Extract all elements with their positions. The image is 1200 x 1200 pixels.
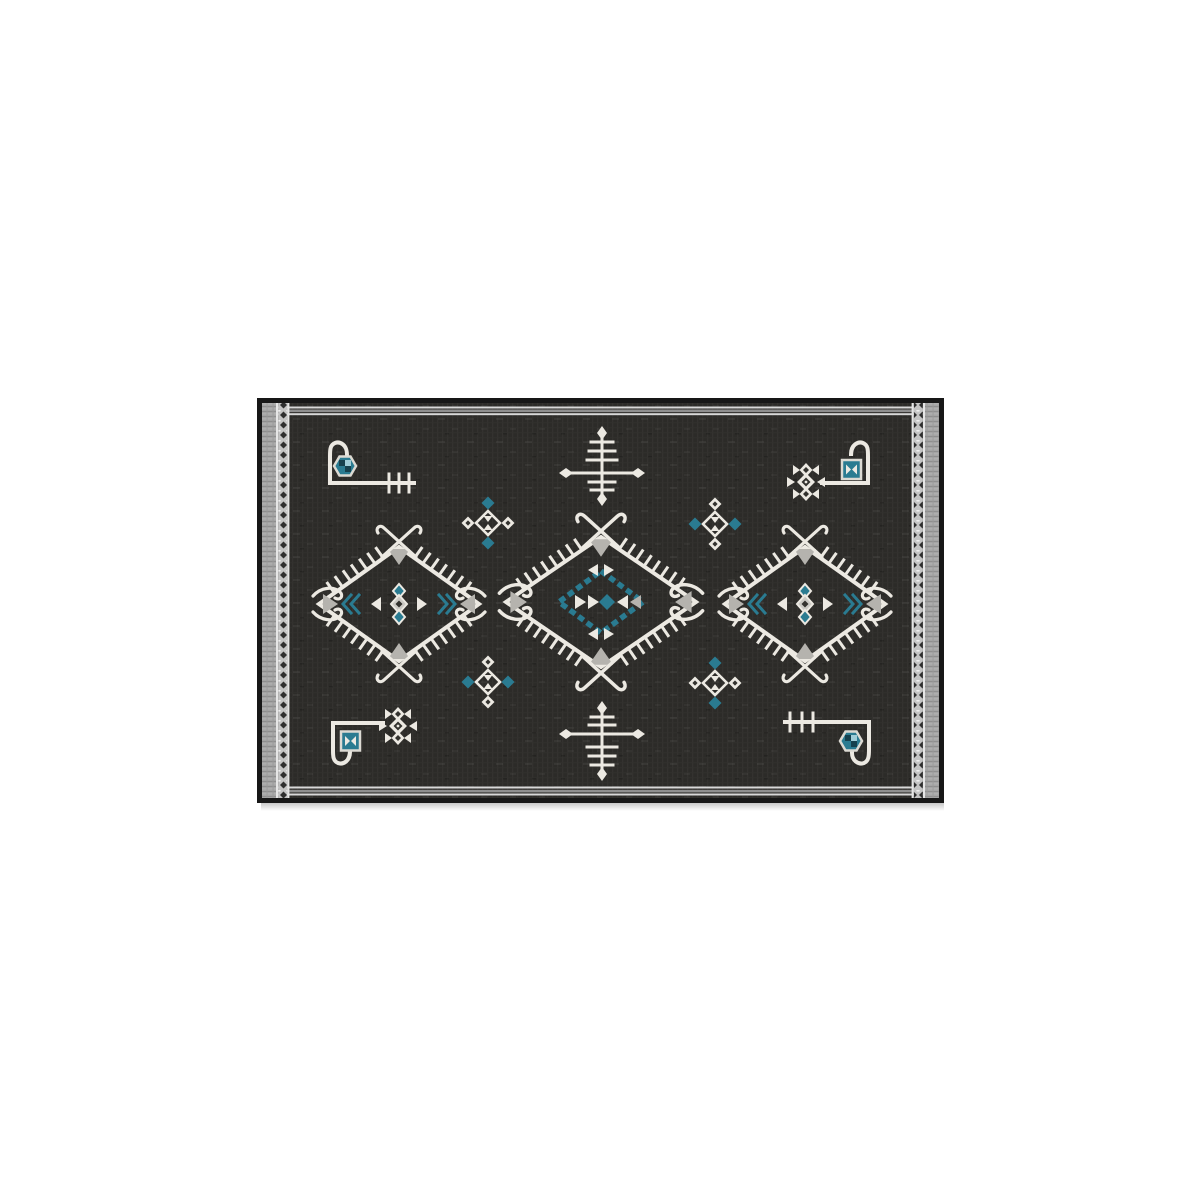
rug-product-photo xyxy=(0,0,1200,1200)
rug-shadow xyxy=(261,803,944,811)
border-bottom-stripes xyxy=(262,787,939,796)
hexagon-accent-top-left xyxy=(334,457,356,476)
border-top-stripes xyxy=(262,407,939,416)
rug xyxy=(257,398,944,811)
page-background xyxy=(0,0,1200,1200)
border-band-left xyxy=(262,403,289,798)
border-band-right xyxy=(912,403,939,798)
teal-square-accent-top-right xyxy=(842,460,861,479)
teal-square-accent-bottom-left xyxy=(341,732,360,751)
hexagon-accent-bottom-right xyxy=(840,732,862,751)
